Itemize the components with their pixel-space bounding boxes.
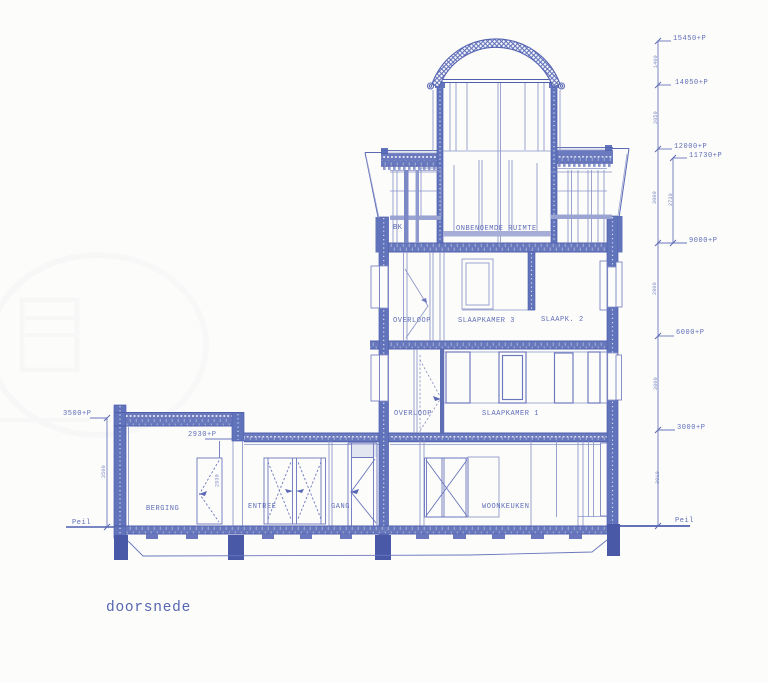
svg-text:3500: 3500 xyxy=(101,465,107,478)
svg-text:doorsnede: doorsnede xyxy=(106,600,191,616)
svg-text:SLAAPKAMER 1: SLAAPKAMER 1 xyxy=(482,410,539,418)
svg-text:3000: 3000 xyxy=(652,191,658,204)
svg-text:11730+P: 11730+P xyxy=(689,152,722,160)
svg-text:OVERLOOP: OVERLOOP xyxy=(393,317,431,325)
svg-text:14050+P: 14050+P xyxy=(675,79,708,87)
svg-text:2730: 2730 xyxy=(668,193,674,206)
svg-text:2050: 2050 xyxy=(653,111,659,124)
svg-text:BK: BK xyxy=(393,224,403,232)
svg-text:3500+P: 3500+P xyxy=(63,410,92,418)
svg-text:Peil: Peil xyxy=(72,519,91,527)
svg-text:12000+P: 12000+P xyxy=(674,143,707,151)
svg-text:GANG: GANG xyxy=(331,503,350,511)
svg-text:6000+P: 6000+P xyxy=(676,329,705,337)
svg-text:3000+P: 3000+P xyxy=(677,424,706,432)
svg-text:3010: 3010 xyxy=(655,471,661,484)
svg-text:Peil: Peil xyxy=(675,517,694,525)
svg-text:2800: 2800 xyxy=(652,282,658,295)
svg-text:1400: 1400 xyxy=(653,55,659,68)
svg-text:SLAAPK. 2: SLAAPK. 2 xyxy=(541,316,584,324)
svg-text:WOONKEUKEN: WOONKEUKEN xyxy=(482,503,530,511)
svg-text:ONBENOEMDE RUIMTE: ONBENOEMDE RUIMTE xyxy=(456,225,537,233)
svg-text:OVERLOOP: OVERLOOP xyxy=(394,410,432,418)
svg-text:15450+P: 15450+P xyxy=(673,35,706,43)
svg-text:BERGING: BERGING xyxy=(146,505,179,513)
svg-text:3000: 3000 xyxy=(653,377,659,390)
svg-text:ENTREE: ENTREE xyxy=(248,503,277,511)
svg-text:2930: 2930 xyxy=(215,474,221,487)
svg-text:2930+P: 2930+P xyxy=(188,431,217,439)
svg-text:9000+P: 9000+P xyxy=(689,237,718,245)
svg-text:SLAAPKAMER 3: SLAAPKAMER 3 xyxy=(458,317,515,325)
